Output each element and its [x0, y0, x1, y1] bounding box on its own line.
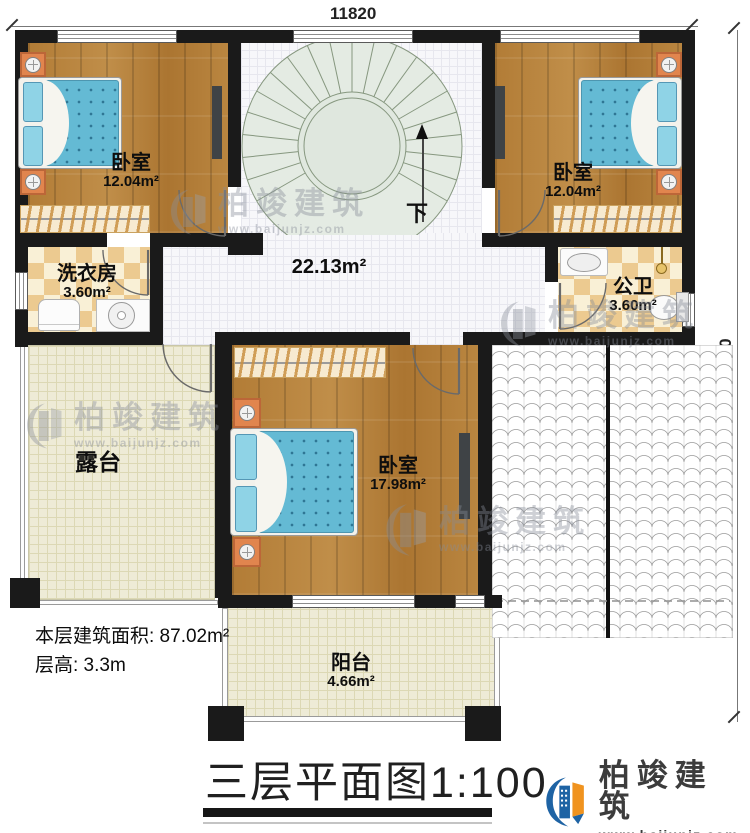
wardrobe [20, 205, 150, 233]
washing-machine [38, 299, 80, 331]
plan-title: 三层平面图1:100 [205, 748, 548, 810]
stair-down-label: 下 [406, 196, 428, 228]
bathroom-sink [567, 253, 601, 272]
lamp-icon [661, 174, 677, 190]
wall [218, 595, 292, 608]
title-underline-thin [203, 822, 492, 824]
nightstand [233, 398, 261, 428]
dimension-tick [728, 22, 741, 35]
door-arc-bedroom-b [411, 346, 461, 396]
terrace-railing [20, 345, 25, 603]
nightstand [656, 52, 682, 77]
room-label-balcony: 阳台 4.66m² [327, 652, 375, 691]
wall [15, 233, 107, 247]
lamp-icon [239, 405, 255, 421]
wall-corner [10, 578, 40, 608]
bathroom-vanity [560, 248, 608, 276]
nightstand [20, 169, 46, 195]
floor-plan: 11820 12120 [0, 0, 750, 833]
nightstand [20, 52, 46, 77]
pillow [657, 126, 677, 166]
lamp-icon [25, 57, 41, 73]
wall [150, 247, 163, 345]
door-arc-bedroom-tr [497, 188, 547, 238]
tv [495, 86, 505, 159]
nightstand [656, 169, 682, 195]
nightstand [233, 537, 261, 567]
balcony-pillar [208, 706, 244, 741]
pillow [23, 126, 43, 166]
sink-drain-icon [117, 311, 126, 320]
balcony-railing [222, 716, 500, 722]
company-url: www.baijunjz.com [599, 827, 750, 833]
lamp-icon [661, 57, 677, 73]
room-label-bedroom-tr: 卧室 12.04m² [545, 162, 601, 201]
dimension-tick [728, 711, 741, 724]
dimension-top: 11820 [330, 4, 376, 24]
window [15, 272, 28, 310]
wall [232, 332, 410, 345]
stair-arrow-icon [416, 124, 428, 139]
title-underline [203, 808, 492, 817]
wall [478, 332, 492, 608]
window [57, 30, 177, 43]
toilet-tank [676, 292, 689, 322]
room-label-bedroom-b: 卧室 17.98m² [370, 455, 426, 494]
wall [485, 595, 502, 608]
company-logo-icon [543, 774, 589, 830]
balcony-door-window [292, 595, 415, 608]
hall-floor [163, 233, 545, 345]
lamp-icon [239, 544, 255, 560]
pillow [235, 434, 257, 480]
window [455, 595, 485, 608]
room-label-hall: 22.13m² [292, 256, 367, 278]
tv [459, 433, 470, 519]
floor-notes: 本层建筑面积: 87.02m² 层高: 3.3m [35, 622, 229, 681]
door-arc-terrace [161, 342, 213, 394]
balcony-pillar [465, 706, 501, 741]
floor-area-note: 本层建筑面积: 87.02m² [35, 622, 229, 651]
wall [228, 30, 241, 187]
laundry-sink [108, 302, 135, 329]
pillow [235, 486, 257, 532]
roof-tiles [492, 345, 733, 638]
wall [682, 30, 695, 293]
window [500, 30, 640, 43]
room-label-laundry: 洗衣房 3.60m² [57, 263, 117, 302]
window [293, 30, 413, 43]
wall [482, 30, 495, 188]
wardrobe [234, 347, 386, 378]
dimension-line-right [737, 30, 738, 722]
wall [415, 595, 455, 608]
spiral-staircase [241, 43, 482, 235]
wall [15, 332, 160, 345]
lamp-icon [25, 174, 41, 190]
door-arc-bathroom [558, 281, 608, 331]
company-logo: 柏竣建筑 www.baijunjz.com [543, 760, 750, 833]
room-label-bathroom: 公卫 3.60m² [609, 276, 657, 315]
wall [228, 233, 263, 255]
wall [545, 332, 695, 345]
hanging-lamp-icon [656, 263, 667, 274]
wardrobe [553, 205, 682, 233]
door-arc-bedroom-tl [177, 188, 227, 238]
tv [212, 86, 222, 159]
pillow [657, 82, 677, 122]
floor-height-note: 层高: 3.3m [35, 651, 229, 680]
terrace-railing [20, 600, 218, 605]
room-label-bedroom-tl: 卧室 12.04m² [103, 152, 159, 191]
wall [545, 240, 558, 282]
company-name: 柏竣建筑 [599, 760, 750, 822]
dimension-line-top [12, 26, 698, 27]
room-label-terrace: 露台 [75, 450, 121, 476]
pillow [23, 82, 43, 122]
